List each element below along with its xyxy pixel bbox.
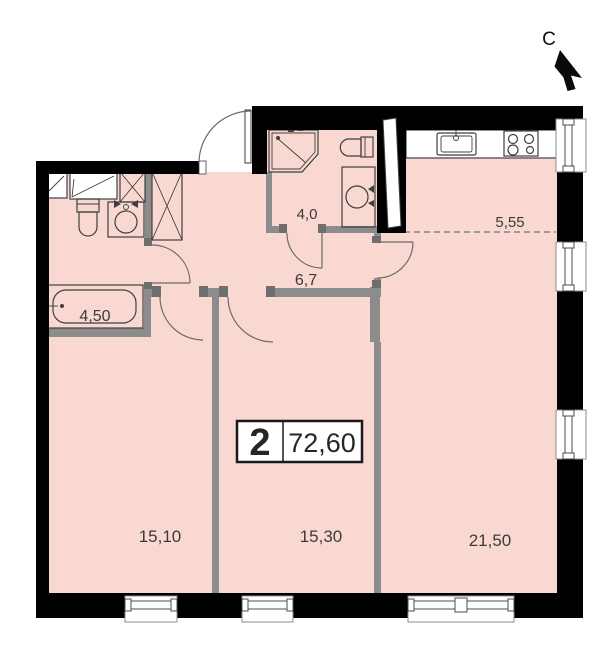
floor-plan: 4,50 4,0 6,7 5,55 15,10 15,30 21,50 2 72… (0, 0, 608, 655)
partition-bedrooms (212, 288, 219, 593)
wall-right (557, 106, 583, 618)
hallway-area-label: 6,7 (295, 272, 317, 289)
window-right-1 (556, 119, 586, 172)
kitchen-counter (406, 130, 557, 158)
partition-wc-left (266, 172, 272, 233)
shelf-icon (43, 173, 117, 199)
window-right-3 (556, 410, 586, 459)
bedroom-middle-area-label: 15,30 (300, 527, 343, 546)
north-label: С (542, 29, 556, 50)
wall-top (252, 106, 583, 130)
floor-plan-page: 4,50 4,0 6,7 5,55 15,10 15,30 21,50 2 72… (0, 0, 608, 655)
badge-total-area: 72,60 (288, 428, 356, 458)
window-bottom-2 (242, 596, 293, 622)
badge-room-count: 2 (249, 422, 270, 464)
kitchen-niche-area-label: 5,55 (495, 214, 524, 231)
window-right-2 (556, 242, 586, 291)
window-bottom-3 (408, 596, 514, 622)
bedroom-left-area-label: 15,10 (139, 527, 182, 546)
wall-left (36, 161, 49, 618)
bathroom-area-label: 4,50 (79, 308, 110, 325)
partition-living-upper (370, 287, 380, 342)
shower-wc-area-label: 4,0 (297, 206, 318, 223)
living-room-area-label: 21,50 (469, 531, 512, 550)
apartment-info-badge: 2 72,60 (237, 421, 362, 464)
partition-living-lower (374, 342, 381, 593)
room-fill (49, 128, 557, 593)
partition-hall-right (273, 288, 381, 297)
north-arrow-icon (555, 50, 583, 91)
partition-bathroom-bottom (46, 328, 151, 337)
window-bottom-1 (125, 596, 177, 622)
partition-bathroom-right-upper (145, 172, 152, 245)
entrance-door (199, 110, 251, 174)
compass: С (542, 29, 582, 91)
wall-top-left (36, 161, 199, 174)
